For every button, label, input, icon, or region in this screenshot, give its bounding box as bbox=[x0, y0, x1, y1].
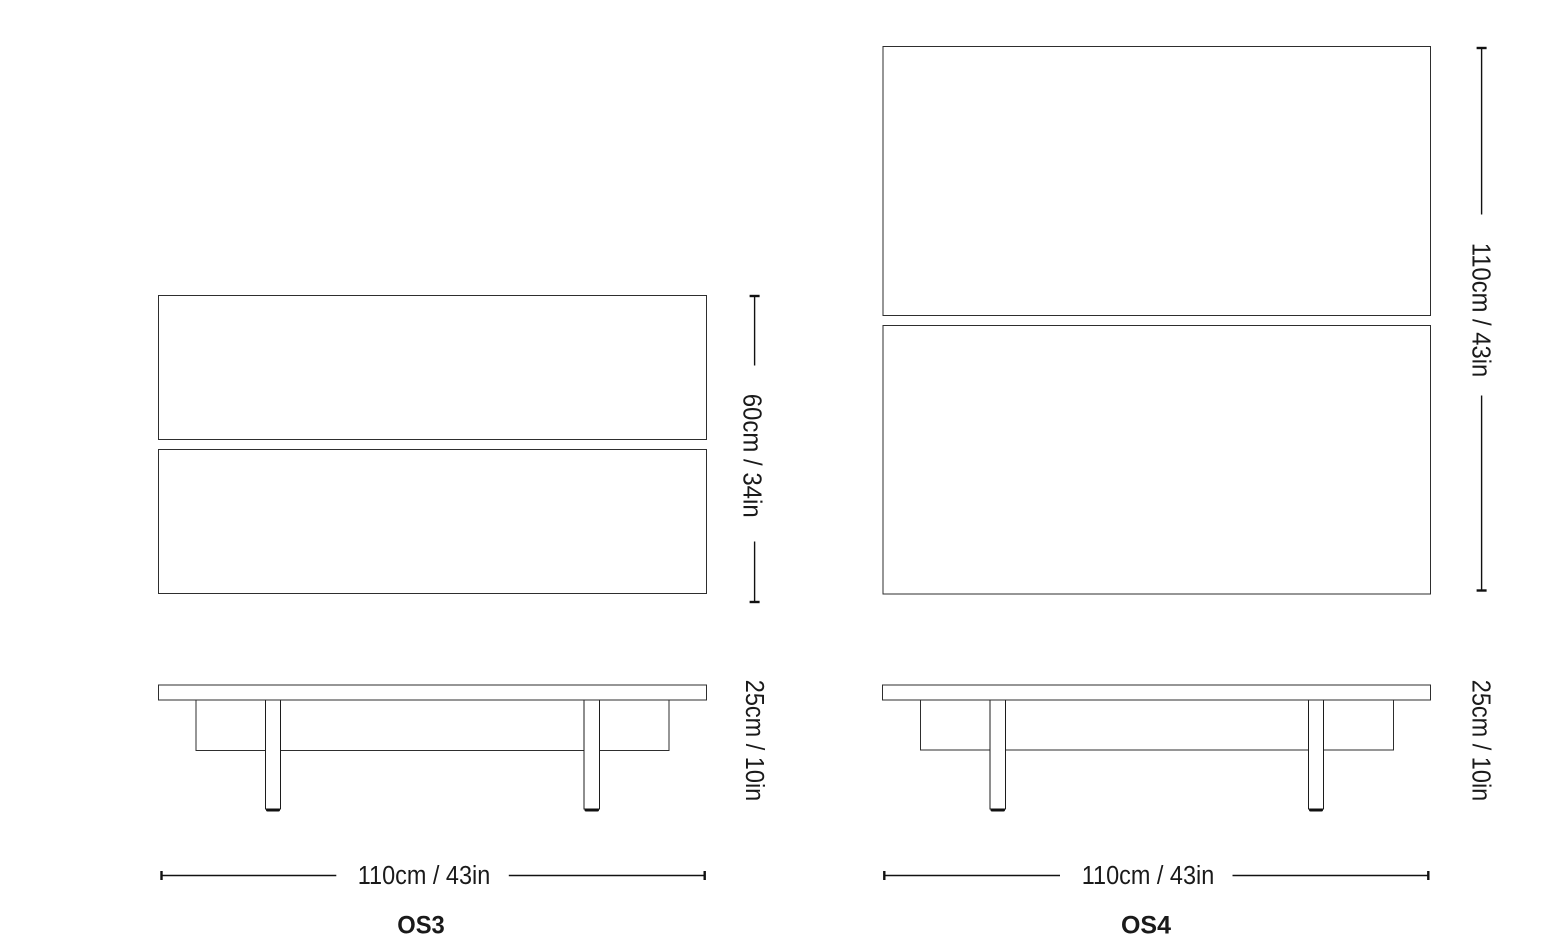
svg-text:25cm / 10in: 25cm / 10in bbox=[1467, 680, 1495, 802]
svg-text:OS4: OS4 bbox=[1121, 912, 1171, 940]
svg-text:OS3: OS3 bbox=[397, 912, 445, 940]
svg-text:110cm / 43in: 110cm / 43in bbox=[1467, 243, 1495, 378]
svg-text:110cm / 43in: 110cm / 43in bbox=[358, 862, 491, 890]
svg-text:110cm / 43in: 110cm / 43in bbox=[1082, 862, 1215, 890]
svg-text:25cm / 10in: 25cm / 10in bbox=[740, 680, 768, 802]
svg-text:60cm / 34in: 60cm / 34in bbox=[738, 394, 766, 518]
